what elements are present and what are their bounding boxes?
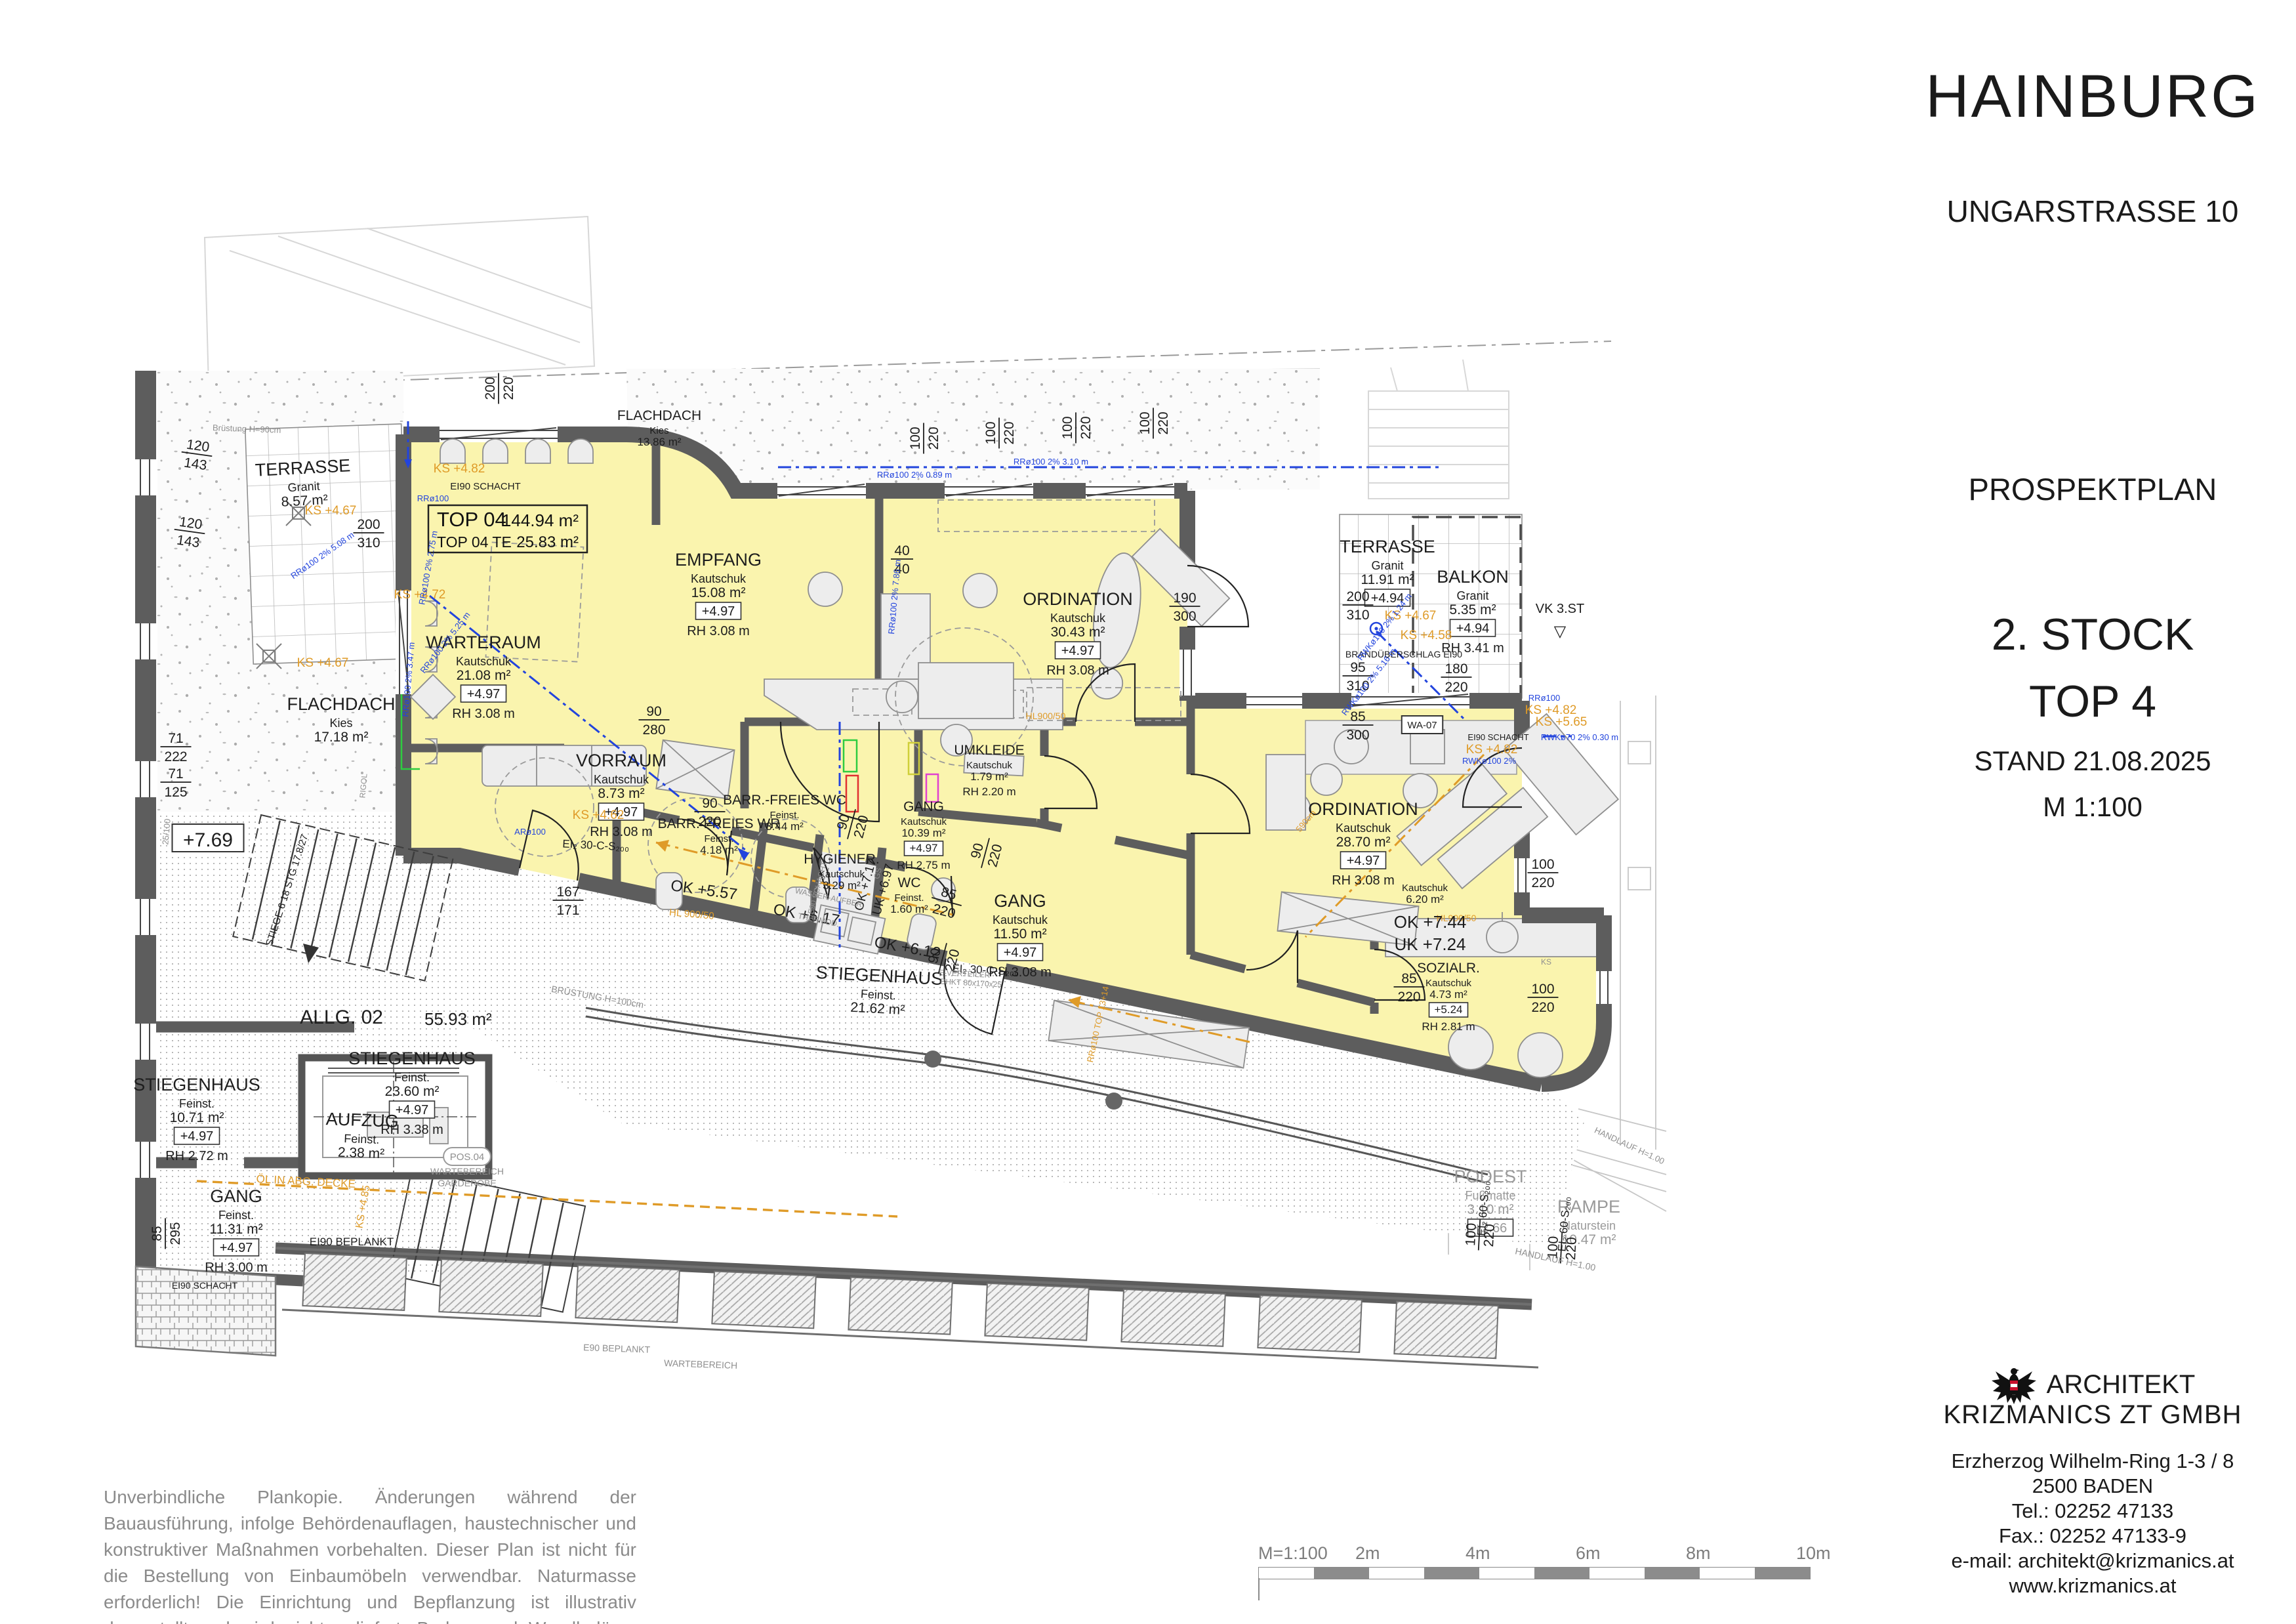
svg-text:143: 143 bbox=[183, 455, 208, 474]
dimension-label: 100220 bbox=[1528, 857, 1559, 890]
svg-text:HANDLAUF H=1.00: HANDLAUF H=1.00 bbox=[1593, 1125, 1666, 1167]
svg-text:Granit: Granit bbox=[1371, 559, 1403, 572]
svg-text:RRø100 2% 0.89 m: RRø100 2% 0.89 m bbox=[877, 470, 952, 480]
room-label: GANGKautschuk10.39 m²+4.97RH 2.75 m bbox=[897, 799, 950, 871]
svg-text:120: 120 bbox=[178, 514, 203, 533]
svg-text:BALKON: BALKON bbox=[1437, 567, 1509, 587]
plan-type: PROSPEKTPLAN bbox=[1889, 471, 2296, 507]
svg-text:190: 190 bbox=[1173, 591, 1196, 606]
svg-text:GANG: GANG bbox=[210, 1186, 262, 1206]
svg-text:220: 220 bbox=[698, 814, 721, 829]
architect-web: www.krizmanics.at bbox=[1889, 1573, 2296, 1598]
svg-text:Kautschuk: Kautschuk bbox=[1336, 822, 1391, 835]
svg-text:+4.97: +4.97 bbox=[1347, 854, 1380, 868]
svg-text:200: 200 bbox=[1346, 589, 1369, 604]
svg-text:+7.69: +7.69 bbox=[183, 829, 233, 851]
architect-city: 2500 BADEN bbox=[1889, 1474, 2296, 1499]
scalebar-tick-label: 10m bbox=[1796, 1543, 1831, 1564]
dimension-label: 200220 bbox=[483, 373, 516, 404]
annotation: HL900/50 bbox=[1026, 711, 1066, 721]
facade-band bbox=[136, 1248, 1538, 1367]
svg-text:1.79 m²: 1.79 m² bbox=[970, 770, 1008, 783]
annotation: ARø100 bbox=[514, 827, 546, 837]
svg-text:85: 85 bbox=[1350, 709, 1365, 724]
svg-text:Kautschuk: Kautschuk bbox=[966, 760, 1013, 771]
svg-text:220: 220 bbox=[926, 427, 941, 449]
room-label: GANGFeinst.11.31 m²+4.97RH 3.00 m bbox=[205, 1186, 268, 1275]
architect-name: KRIZMANICS ZT GMBH bbox=[1889, 1400, 2296, 1430]
svg-text:222: 222 bbox=[164, 749, 187, 764]
svg-text:OK +7.44: OK +7.44 bbox=[1394, 912, 1467, 932]
svg-text:10.39 m²: 10.39 m² bbox=[901, 827, 945, 839]
svg-text:UMKLEIDE: UMKLEIDE bbox=[954, 743, 1024, 758]
annotation: EI90 BEPLANKT bbox=[310, 1236, 394, 1248]
svg-text:85: 85 bbox=[1401, 971, 1416, 986]
architect-email: e-mail: architekt@krizmanics.at bbox=[1889, 1549, 2296, 1573]
svg-text:10.71 m²: 10.71 m² bbox=[170, 1110, 224, 1125]
scale-bar: M=1:1002m4m6m8m10m bbox=[1258, 1543, 1822, 1589]
annotation: HANDLAUF H=1.00 bbox=[1593, 1125, 1666, 1167]
scalebar-tick-label: 2m bbox=[1355, 1543, 1380, 1564]
svg-text:220: 220 bbox=[1078, 416, 1094, 439]
svg-text:2.38 m²: 2.38 m² bbox=[338, 1145, 385, 1161]
svg-text:100: 100 bbox=[1531, 857, 1554, 872]
annotation: KS +4.82 bbox=[434, 462, 485, 476]
svg-text:55.93 m²: 55.93 m² bbox=[424, 1009, 492, 1029]
svg-text:UK +7.24: UK +7.24 bbox=[1394, 934, 1466, 954]
svg-text:FLACHDACH: FLACHDACH bbox=[287, 694, 395, 714]
svg-text:KS +4.67: KS +4.67 bbox=[305, 504, 357, 518]
unit-id: TOP 04 bbox=[437, 508, 506, 531]
scalebar-bar bbox=[1258, 1567, 1811, 1579]
room-label: Kautschuk6.20 m² bbox=[1402, 883, 1448, 906]
svg-text:GANG: GANG bbox=[994, 891, 1046, 911]
svg-text:KS +4.58: KS +4.58 bbox=[1401, 629, 1452, 642]
svg-text:Feinst.: Feinst. bbox=[860, 988, 896, 1003]
svg-text:RH 3.08 m: RH 3.08 m bbox=[452, 707, 515, 721]
svg-text:310: 310 bbox=[1346, 608, 1369, 623]
svg-text:EI90 BEPLANKT: EI90 BEPLANKT bbox=[310, 1236, 394, 1248]
svg-text:VK 3.ST: VK 3.ST bbox=[1536, 602, 1584, 616]
svg-text:220: 220 bbox=[1156, 411, 1171, 434]
svg-text:295: 295 bbox=[168, 1222, 183, 1245]
annotation: UK +7.24 bbox=[1394, 934, 1466, 954]
project-address: UNGARSTRASSE 10 bbox=[1889, 194, 2296, 229]
annotation: KS +4.67 bbox=[305, 504, 357, 518]
svg-text:FLACHDACH: FLACHDACH bbox=[617, 408, 701, 423]
architect-fax: Fax.: 02252 47133-9 bbox=[1889, 1524, 2296, 1549]
svg-text:STIEGENHAUS: STIEGENHAUS bbox=[133, 1075, 260, 1094]
svg-text:+4.97: +4.97 bbox=[180, 1129, 214, 1144]
architect-row: ARCHITEKT bbox=[1889, 1364, 2296, 1405]
svg-text:+4.97: +4.97 bbox=[909, 842, 937, 854]
svg-text:EI90 SCHACHT: EI90 SCHACHT bbox=[450, 481, 521, 492]
unit-summary-box: TOP 04 144.94 m² TOP 04 TE 25.83 m² bbox=[428, 505, 587, 552]
svg-text:220: 220 bbox=[501, 377, 516, 400]
plan-scale: M 1:100 bbox=[1889, 791, 2296, 823]
plan-date: STAND 21.08.2025 bbox=[1889, 745, 2296, 777]
svg-text:BARR.-FREIES WC: BARR.-FREIES WC bbox=[723, 793, 846, 808]
svg-text:KS +4.82: KS +4.82 bbox=[434, 462, 485, 476]
project-title: HAINBURG bbox=[1889, 62, 2296, 131]
svg-text:WC: WC bbox=[898, 875, 921, 890]
annotation: WA-07 bbox=[1402, 716, 1443, 734]
svg-text:KS +5.65: KS +5.65 bbox=[1536, 715, 1588, 729]
svg-text:+4.97: +4.97 bbox=[220, 1241, 253, 1255]
svg-text:Kautschuk: Kautschuk bbox=[456, 655, 512, 668]
svg-text:71: 71 bbox=[168, 731, 183, 746]
svg-text:Feinst.: Feinst. bbox=[218, 1209, 254, 1222]
architect-address: Erzherzog Wilhelm-Ring 1-3 / 8 2500 BADE… bbox=[1889, 1449, 2296, 1598]
annotation: KS +5.65 bbox=[1536, 715, 1588, 729]
svg-text:220: 220 bbox=[1445, 680, 1467, 695]
svg-text:VORRAUM: VORRAUM bbox=[576, 751, 666, 770]
svg-text:200: 200 bbox=[483, 377, 498, 400]
svg-text:171: 171 bbox=[556, 903, 579, 918]
svg-text:EMPFANG: EMPFANG bbox=[675, 550, 762, 570]
scalebar-tick-label: 4m bbox=[1466, 1543, 1490, 1564]
svg-text:180: 180 bbox=[1445, 661, 1467, 677]
svg-text:RH 3.08 m: RH 3.08 m bbox=[1046, 663, 1109, 678]
svg-text:Feinst.: Feinst. bbox=[179, 1097, 215, 1110]
svg-text:AUFZUG: AUFZUG bbox=[325, 1109, 399, 1131]
unit-area: 144.94 m² bbox=[502, 510, 579, 530]
svg-text:EI90 SCHACHT: EI90 SCHACHT bbox=[1467, 732, 1528, 742]
annotation: ▽ bbox=[1554, 623, 1567, 640]
svg-text:ORDINATION: ORDINATION bbox=[1023, 589, 1133, 609]
svg-text:Kautschuk: Kautschuk bbox=[993, 913, 1048, 927]
annotation: WARTEBEREICH bbox=[430, 1166, 504, 1176]
svg-text:ORDINATION: ORDINATION bbox=[1308, 799, 1418, 819]
svg-text:143: 143 bbox=[176, 533, 201, 551]
svg-text:200: 200 bbox=[357, 517, 380, 532]
scalebar-tick-label: 8m bbox=[1686, 1543, 1711, 1564]
svg-text:WA-07: WA-07 bbox=[1407, 720, 1437, 731]
svg-text:220: 220 bbox=[1531, 875, 1554, 890]
svg-text:RH 2.75 m: RH 2.75 m bbox=[897, 859, 950, 871]
annotation: E90 BEPLANKT bbox=[583, 1342, 651, 1355]
svg-text:90: 90 bbox=[646, 704, 661, 719]
svg-text:GANG: GANG bbox=[903, 799, 944, 814]
svg-text:17.18 m²: 17.18 m² bbox=[314, 730, 369, 745]
annotation: EI90 SCHACHT bbox=[1467, 732, 1528, 742]
svg-text:ALLG. 02: ALLG. 02 bbox=[300, 1007, 383, 1028]
svg-text:5.35 m²: 5.35 m² bbox=[1449, 602, 1496, 617]
floor-label: 2. STOCK bbox=[1889, 609, 2296, 660]
svg-text:+4.97: +4.97 bbox=[1004, 946, 1037, 960]
svg-text:40: 40 bbox=[894, 543, 909, 558]
unit-te-id: TOP 04 TE bbox=[437, 533, 512, 551]
svg-text:1.60 m²: 1.60 m² bbox=[890, 903, 928, 915]
svg-text:KS +4.67: KS +4.67 bbox=[297, 656, 349, 670]
svg-text:KS +4.82: KS +4.82 bbox=[1466, 743, 1518, 757]
svg-text:E90 BEPLANKT: E90 BEPLANKT bbox=[583, 1342, 651, 1355]
svg-text:90: 90 bbox=[702, 796, 717, 811]
svg-text:11.31 m²: 11.31 m² bbox=[209, 1222, 262, 1237]
scalebar-scale-label: M=1:100 bbox=[1258, 1543, 1328, 1564]
svg-text:RH 3.00 m: RH 3.00 m bbox=[205, 1260, 268, 1275]
annotation: VK 3.ST bbox=[1536, 602, 1584, 616]
svg-text:3.29 m²: 3.29 m² bbox=[823, 879, 861, 892]
svg-text:4.18 m²: 4.18 m² bbox=[700, 844, 738, 856]
svg-text:Kautschuk: Kautschuk bbox=[1050, 612, 1106, 625]
svg-text:KS: KS bbox=[1541, 957, 1551, 967]
architect-title: ARCHITEKT bbox=[2047, 1370, 2196, 1400]
annotation: RWKø70 2% 0.30 m bbox=[1541, 732, 1618, 742]
svg-text:Feinst.: Feinst. bbox=[704, 833, 733, 844]
svg-text:30.43 m²: 30.43 m² bbox=[1051, 625, 1105, 640]
austrian-eagle-icon bbox=[1990, 1364, 2038, 1405]
svg-text:+4.97: +4.97 bbox=[1061, 644, 1095, 658]
svg-text:300: 300 bbox=[1173, 609, 1196, 624]
svg-text:6.20 m²: 6.20 m² bbox=[1406, 893, 1444, 906]
svg-text:ARø100: ARø100 bbox=[514, 827, 546, 837]
annotation: KS +4.58 bbox=[1401, 629, 1452, 642]
svg-text:310: 310 bbox=[357, 535, 380, 551]
svg-text:RWKø70 2% 0.30 m: RWKø70 2% 0.30 m bbox=[1541, 732, 1618, 742]
svg-text:+4.97: +4.97 bbox=[702, 604, 735, 619]
svg-text:95: 95 bbox=[1350, 660, 1365, 675]
annotation: POS.04 bbox=[443, 1148, 491, 1165]
svg-text:100: 100 bbox=[1138, 411, 1153, 434]
svg-text:125: 125 bbox=[164, 785, 187, 800]
svg-text:RRø100 2% 3.10 m: RRø100 2% 3.10 m bbox=[1014, 457, 1088, 467]
svg-text:Kies: Kies bbox=[649, 425, 668, 436]
annotation: +7.69 bbox=[173, 824, 244, 852]
svg-text:13.86 m²: 13.86 m² bbox=[637, 436, 681, 448]
annotation: RRø100 bbox=[1528, 693, 1560, 703]
svg-text:100: 100 bbox=[908, 427, 923, 449]
svg-text:220: 220 bbox=[1397, 989, 1420, 1005]
svg-text:RH 2.81 m: RH 2.81 m bbox=[1422, 1020, 1475, 1033]
svg-text:SOZIALR.: SOZIALR. bbox=[1417, 961, 1480, 976]
architect-street: Erzherzog Wilhelm-Ring 1-3 / 8 bbox=[1889, 1449, 2296, 1474]
svg-text:28.70 m²: 28.70 m² bbox=[1336, 835, 1391, 850]
svg-text:RH 2.20 m: RH 2.20 m bbox=[962, 785, 1015, 798]
svg-text:Kautschuk: Kautschuk bbox=[691, 572, 747, 585]
architect-tel: Tel.: 02252 47133 bbox=[1889, 1499, 2296, 1524]
svg-text:Kautschuk: Kautschuk bbox=[1425, 978, 1472, 989]
svg-text:Kautschuk: Kautschuk bbox=[901, 816, 947, 827]
svg-text:3.44 m²: 3.44 m² bbox=[766, 820, 804, 833]
svg-text:300: 300 bbox=[1346, 728, 1369, 743]
annotation: GARDEROBE bbox=[438, 1178, 496, 1188]
svg-text:RH 2.72 m: RH 2.72 m bbox=[165, 1149, 228, 1163]
svg-text:11.91 m²: 11.91 m² bbox=[1361, 572, 1414, 587]
unit-label: TOP 4 bbox=[1889, 676, 2296, 727]
svg-text:11.50 m²: 11.50 m² bbox=[993, 927, 1046, 942]
svg-text:HL900/50: HL900/50 bbox=[1026, 711, 1066, 721]
svg-text:100: 100 bbox=[983, 421, 998, 444]
floor-plan-sheet: TOP 04 144.94 m² TOP 04 TE 25.83 m² WART… bbox=[0, 0, 2296, 1624]
svg-text:POS.04: POS.04 bbox=[450, 1152, 485, 1163]
svg-text:RH 3.08 m: RH 3.08 m bbox=[590, 825, 653, 839]
svg-text:3.10 m²: 3.10 m² bbox=[1467, 1202, 1513, 1217]
scalebar-tick-label: 6m bbox=[1576, 1543, 1601, 1564]
svg-text:Granit: Granit bbox=[1456, 589, 1488, 602]
svg-text:21.62 m²: 21.62 m² bbox=[850, 1000, 905, 1018]
svg-text:RWKø100 2%: RWKø100 2% bbox=[1462, 756, 1517, 766]
svg-text:EI90 SCHACHT: EI90 SCHACHT bbox=[172, 1280, 238, 1291]
svg-text:GARDEROBE: GARDEROBE bbox=[438, 1178, 496, 1188]
svg-text:RH 3.08 m: RH 3.08 m bbox=[1332, 873, 1395, 888]
svg-text:Feinst.: Feinst. bbox=[894, 892, 924, 904]
svg-text:+4.97: +4.97 bbox=[396, 1103, 429, 1117]
svg-text:RH 3.08 m: RH 3.08 m bbox=[687, 624, 750, 638]
svg-text:71: 71 bbox=[168, 766, 183, 781]
svg-text:▽: ▽ bbox=[1554, 623, 1567, 640]
svg-text:RRø100: RRø100 bbox=[1528, 693, 1560, 703]
svg-text:WARTEBEREICH: WARTEBEREICH bbox=[430, 1166, 504, 1176]
svg-text:Kautschuk: Kautschuk bbox=[1402, 883, 1448, 894]
svg-text:+4.97: +4.97 bbox=[467, 687, 501, 701]
unit-te-area: 25.83 m² bbox=[516, 533, 579, 551]
annotation: EI90 SCHACHT bbox=[172, 1280, 238, 1291]
annotation: RWKø100 2% bbox=[1462, 756, 1517, 766]
svg-text:Feinst.: Feinst. bbox=[394, 1071, 430, 1084]
annotation: OK +7.44 bbox=[1394, 912, 1467, 932]
svg-text:220: 220 bbox=[1531, 1000, 1554, 1015]
svg-text:85: 85 bbox=[150, 1226, 165, 1241]
svg-text:TERRASSE: TERRASSE bbox=[1340, 537, 1435, 556]
svg-text:280: 280 bbox=[642, 722, 665, 738]
svg-text:WARTEBEREICH: WARTEBEREICH bbox=[664, 1358, 738, 1371]
svg-text:8.73 m²: 8.73 m² bbox=[598, 786, 644, 801]
annotation: KS +4.62 bbox=[573, 808, 625, 822]
annotation: WARTEBEREICH bbox=[664, 1358, 738, 1371]
svg-text:KS +4.62: KS +4.62 bbox=[573, 808, 625, 822]
svg-text:Kies: Kies bbox=[329, 717, 352, 730]
svg-text:4.73 m²: 4.73 m² bbox=[1429, 988, 1467, 1001]
annotation: KS +4.67 bbox=[297, 656, 349, 670]
svg-text:167: 167 bbox=[556, 885, 579, 900]
svg-text:23.60 m²: 23.60 m² bbox=[385, 1084, 440, 1099]
annotation: RRø100 2% 3.10 m bbox=[1014, 457, 1088, 467]
svg-text:220: 220 bbox=[1002, 421, 1017, 444]
svg-text:Granit: Granit bbox=[287, 480, 320, 495]
annotation: KS bbox=[1541, 957, 1551, 967]
svg-text:RRø100: RRø100 bbox=[417, 493, 449, 503]
svg-text:Feinst.: Feinst. bbox=[344, 1132, 380, 1146]
svg-text:15.08 m²: 15.08 m² bbox=[691, 585, 746, 600]
svg-text:Kautschuk: Kautschuk bbox=[594, 773, 649, 786]
svg-text:Feinst.: Feinst. bbox=[769, 810, 799, 821]
disclaimer-text: Unverbindliche Plankopie. Änderungen wäh… bbox=[104, 1484, 636, 1624]
svg-text:100: 100 bbox=[1531, 982, 1554, 997]
annotation: KS +4.82 bbox=[1466, 743, 1518, 757]
annotation: RRø100 bbox=[417, 493, 449, 503]
svg-text:21.08 m²: 21.08 m² bbox=[457, 668, 511, 683]
svg-text:120: 120 bbox=[186, 437, 211, 455]
svg-text:STIEGENHAUS: STIEGENHAUS bbox=[348, 1049, 476, 1068]
svg-text:+4.94: +4.94 bbox=[1456, 621, 1490, 636]
annotation: EI90 SCHACHT bbox=[450, 481, 521, 492]
svg-text:+5.24: +5.24 bbox=[1434, 1003, 1462, 1016]
svg-text:100: 100 bbox=[1060, 416, 1075, 439]
annotation: RRø100 2% 0.89 m bbox=[877, 470, 952, 480]
